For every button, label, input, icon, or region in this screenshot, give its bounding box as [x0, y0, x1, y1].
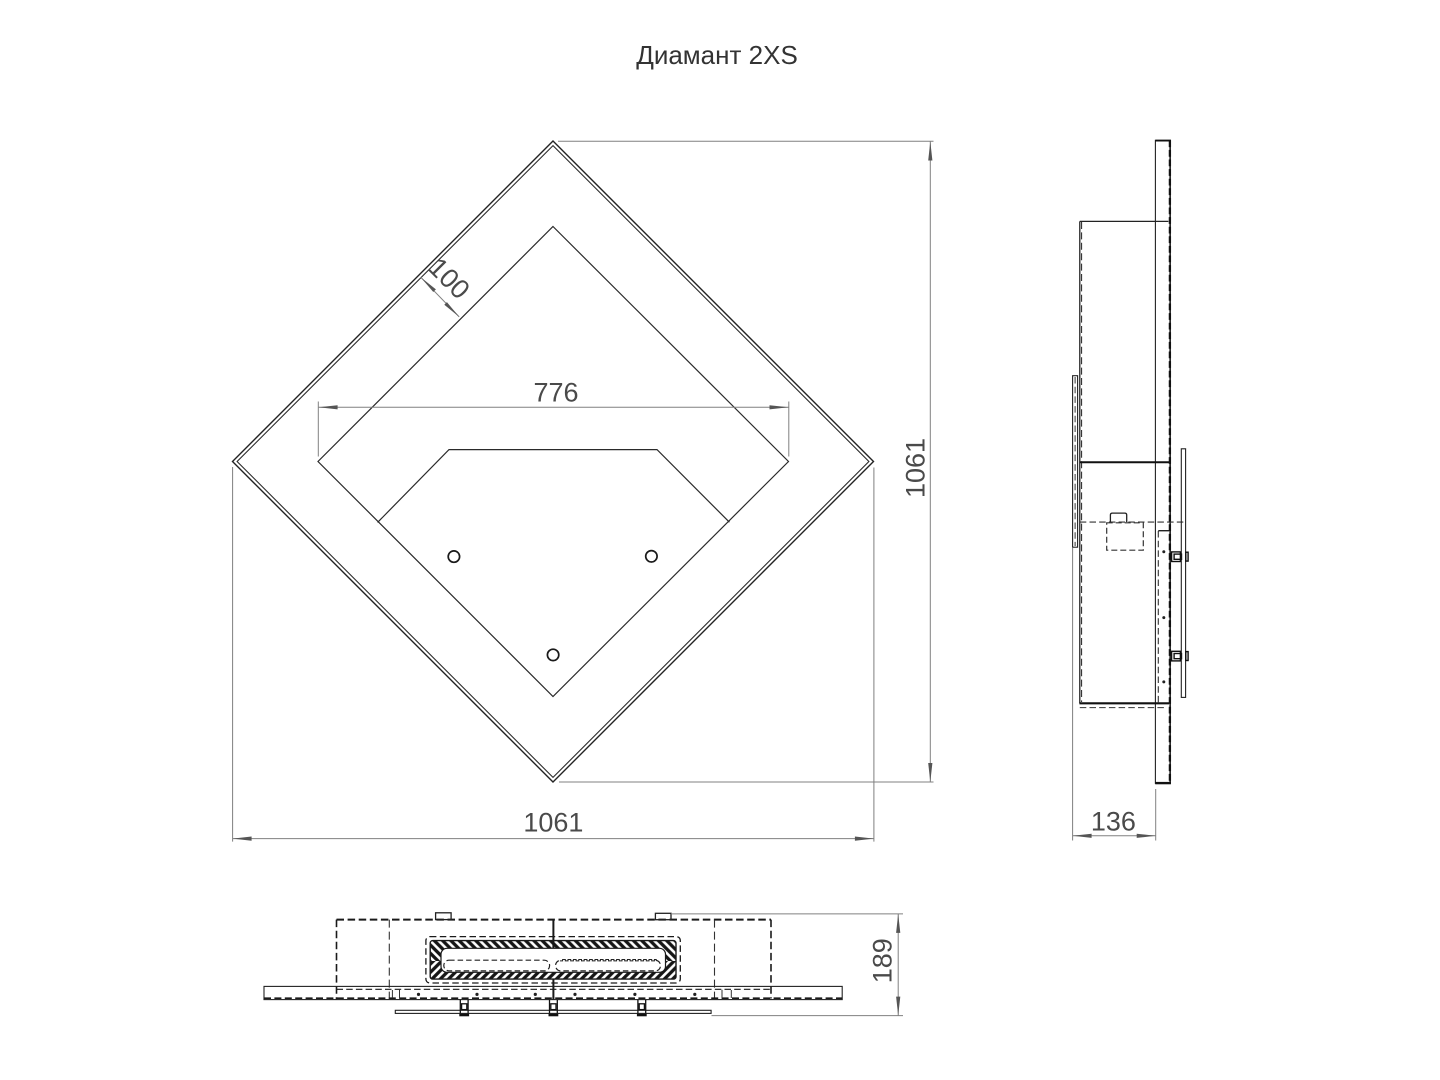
svg-text:1061: 1061	[523, 808, 583, 838]
svg-text:1061: 1061	[901, 438, 931, 498]
svg-text:189: 189	[868, 938, 898, 983]
svg-text:776: 776	[533, 378, 578, 408]
svg-text:136: 136	[1091, 806, 1136, 836]
svg-text:Диамант 2XS: Диамант 2XS	[636, 40, 798, 70]
svg-text:100: 100	[423, 252, 476, 305]
